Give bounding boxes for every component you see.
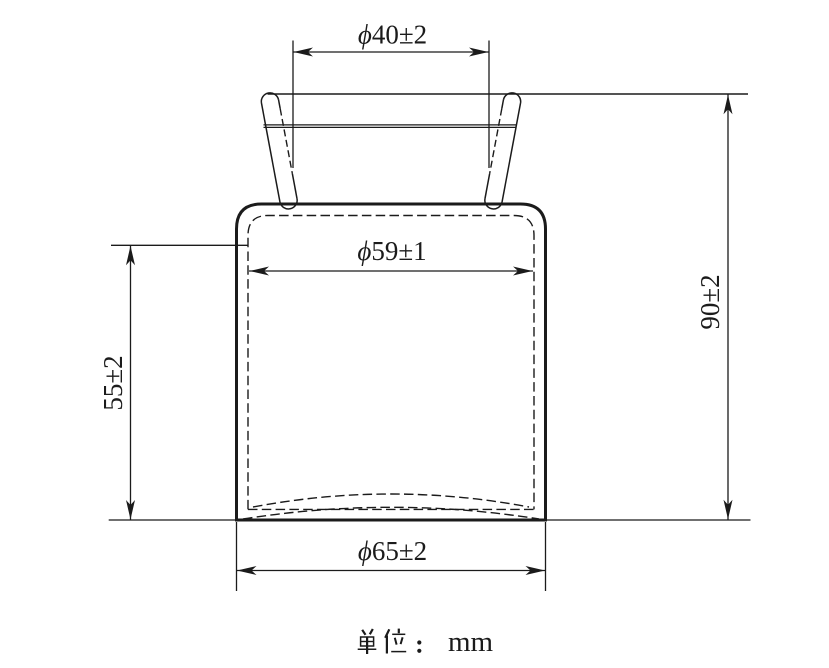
svg-text:ϕ40±2: ϕ40±2 [358,20,427,50]
svg-text:55±2: 55±2 [98,355,128,410]
svg-text:90±2: 90±2 [695,274,725,329]
svg-text:ϕ65±2: ϕ65±2 [358,536,427,566]
svg-text:ϕ59±1: ϕ59±1 [357,236,426,266]
svg-text:mm: mm [448,626,494,658]
